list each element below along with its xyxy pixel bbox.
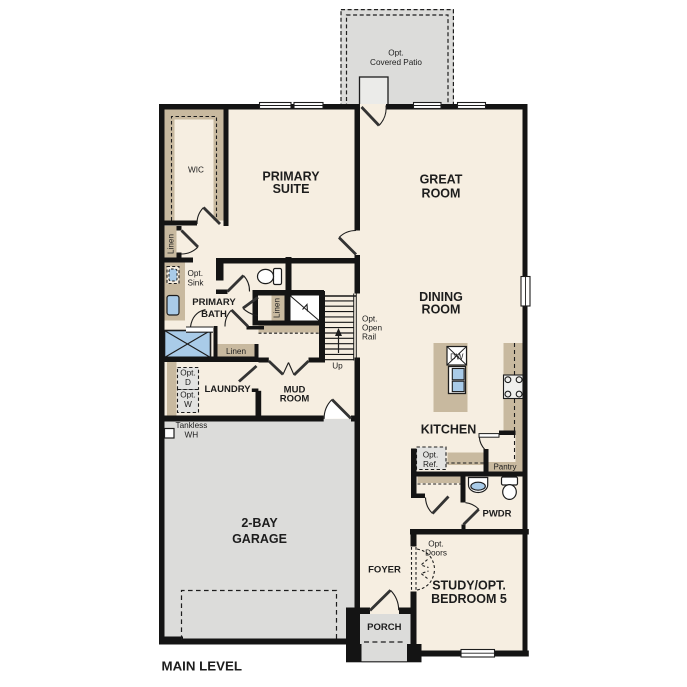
svg-text:GARAGE: GARAGE bbox=[232, 532, 287, 546]
svg-text:Linen: Linen bbox=[167, 234, 176, 254]
svg-text:Opt.: Opt. bbox=[388, 49, 403, 58]
svg-text:PORCH: PORCH bbox=[367, 622, 401, 633]
svg-text:ROOM: ROOM bbox=[422, 303, 461, 317]
svg-text:Pantry: Pantry bbox=[493, 463, 516, 472]
svg-text:MAIN LEVEL: MAIN LEVEL bbox=[162, 659, 243, 674]
svg-text:FOYER: FOYER bbox=[368, 565, 401, 576]
svg-text:PRIMARY: PRIMARY bbox=[192, 297, 236, 308]
svg-text:Tankless: Tankless bbox=[176, 421, 208, 430]
svg-text:Sink: Sink bbox=[188, 279, 205, 288]
svg-text:Opt.: Opt. bbox=[180, 369, 195, 378]
svg-text:Opt.: Opt. bbox=[428, 540, 443, 549]
svg-text:D: D bbox=[185, 378, 191, 387]
svg-text:W: W bbox=[184, 400, 192, 409]
svg-text:Linen: Linen bbox=[273, 298, 282, 318]
svg-text:Opt.: Opt. bbox=[362, 315, 377, 324]
svg-text:KITCHEN: KITCHEN bbox=[421, 423, 477, 437]
svg-text:DW: DW bbox=[450, 353, 464, 362]
svg-text:Opt.: Opt. bbox=[180, 391, 195, 400]
svg-text:ROOM: ROOM bbox=[422, 187, 461, 201]
svg-text:STUDY/OPT.: STUDY/OPT. bbox=[432, 579, 506, 593]
svg-text:Up: Up bbox=[332, 362, 343, 371]
svg-text:2-BAY: 2-BAY bbox=[241, 516, 278, 530]
svg-text:PWDR: PWDR bbox=[482, 509, 511, 520]
svg-text:Rail: Rail bbox=[362, 333, 376, 342]
svg-text:Open: Open bbox=[362, 324, 382, 333]
svg-text:ROOM: ROOM bbox=[280, 394, 310, 405]
svg-text:SUITE: SUITE bbox=[273, 182, 310, 196]
svg-text:LAUNDRY: LAUNDRY bbox=[204, 384, 251, 395]
svg-text:WIC: WIC bbox=[188, 166, 204, 175]
svg-text:Covered Patio: Covered Patio bbox=[370, 58, 422, 67]
svg-text:Ref.: Ref. bbox=[423, 460, 438, 469]
svg-text:Linen: Linen bbox=[226, 347, 246, 356]
svg-text:Doors: Doors bbox=[425, 549, 447, 558]
svg-text:GREAT: GREAT bbox=[420, 173, 463, 187]
svg-text:WH: WH bbox=[185, 431, 199, 440]
svg-text:Opt.: Opt. bbox=[188, 269, 203, 278]
svg-text:BEDROOM 5: BEDROOM 5 bbox=[431, 592, 507, 606]
svg-text:Opt.: Opt. bbox=[423, 451, 438, 460]
svg-text:BATH: BATH bbox=[201, 309, 227, 320]
